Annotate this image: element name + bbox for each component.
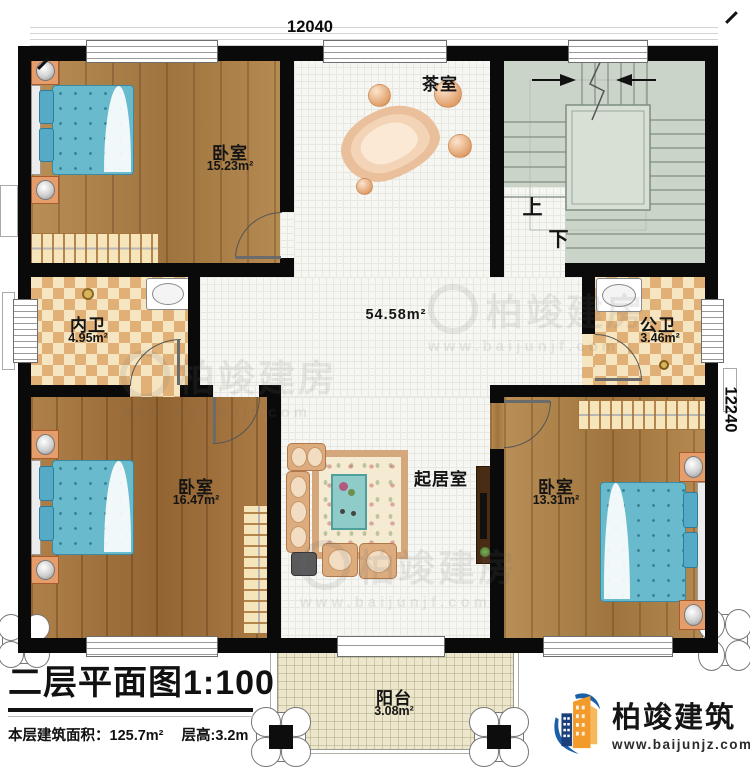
coffee-table	[331, 474, 367, 530]
wall	[490, 385, 718, 397]
wardrobe	[578, 400, 707, 430]
room-area-hall: 54.58m²	[365, 307, 426, 323]
wall	[280, 46, 294, 212]
floor-height-text: 层高:3.2m	[182, 728, 249, 744]
window	[701, 299, 724, 363]
balcony-post	[474, 712, 524, 762]
room-area-bedroom-bottom-left: 16.47m²	[173, 493, 220, 507]
balcony-door-threshold	[337, 636, 445, 657]
door-opening	[130, 385, 180, 397]
title-underline	[8, 708, 253, 712]
window	[13, 299, 38, 363]
title-block: 二层平面图1:100 本层建筑面积：125.7m²层高:3.2m	[8, 655, 275, 745]
door-opening	[582, 334, 595, 385]
floor-area-text: 本层建筑面积：125.7m²	[8, 728, 164, 744]
floor-plan-canvas: 12040 12240 卧室 15.23m² 茶室 上 下 内卫 4.95m² …	[0, 0, 750, 773]
room-label-living-room: 起居室	[414, 465, 468, 490]
pillow	[683, 492, 698, 528]
sofa-chair	[287, 443, 326, 471]
ac-unit-platform	[0, 185, 18, 237]
window	[323, 40, 447, 63]
room-area-bedroom-top-left: 15.23m²	[207, 159, 254, 173]
wall	[565, 263, 718, 277]
dimension-right: 12240	[721, 382, 740, 438]
floor-drain	[659, 360, 669, 370]
door-opening	[490, 403, 504, 449]
window	[86, 40, 218, 63]
wall	[188, 277, 200, 397]
pillow	[683, 532, 698, 568]
room-area-bedroom-bottom-right: 13.31m²	[533, 493, 580, 507]
sink	[146, 278, 190, 310]
wall	[490, 46, 504, 277]
company-logo-icon	[546, 688, 604, 758]
door-leaf	[177, 339, 180, 385]
dimension-tick	[725, 11, 738, 24]
sink	[596, 278, 642, 312]
dimension-top: 12040	[287, 18, 333, 37]
room-label-tea-room: 茶室	[422, 70, 458, 95]
company-logo: 柏竣建筑 www.baijunjz.com	[546, 688, 750, 758]
sofa-chair	[322, 543, 358, 577]
stairs-up-label: 上	[523, 191, 544, 220]
nightstand	[679, 452, 707, 482]
wall	[582, 277, 595, 334]
window	[543, 636, 673, 657]
wall	[18, 263, 294, 277]
wall	[490, 449, 504, 638]
wall	[180, 385, 213, 397]
pillow	[39, 128, 54, 162]
page-title: 二层平面图1:100	[8, 655, 275, 704]
stairs-down-label: 下	[549, 223, 570, 252]
nightstand	[31, 430, 59, 459]
company-name: 柏竣建筑	[612, 694, 750, 736]
room-area-inner-bathroom: 4.95m²	[68, 331, 108, 345]
door-leaf	[504, 400, 550, 403]
side-table	[291, 552, 317, 576]
pillow	[39, 506, 54, 541]
wall	[259, 385, 281, 397]
door-leaf	[595, 378, 641, 381]
title-underline-thin	[8, 716, 253, 717]
pillow	[39, 90, 54, 124]
door-opening	[213, 385, 259, 397]
nightstand	[31, 176, 59, 204]
nightstand	[679, 600, 707, 630]
door-leaf	[213, 397, 216, 443]
sofa	[286, 471, 310, 553]
wall	[18, 385, 130, 397]
room-area-balcony: 3.08m²	[374, 704, 414, 718]
pillow	[39, 466, 54, 501]
tea-room-stone-art	[330, 80, 480, 195]
door-leaf	[235, 256, 281, 259]
wall	[267, 397, 281, 638]
room-area-public-bathroom: 3.46m²	[640, 331, 680, 345]
staircase	[504, 60, 705, 263]
sofa-chair	[359, 543, 397, 579]
company-website: www.baijunjz.com	[612, 737, 750, 752]
door-opening	[280, 212, 294, 258]
room-hall	[200, 277, 582, 397]
floor-stats: 本层建筑面积：125.7m²层高:3.2m	[8, 724, 275, 745]
window	[86, 636, 218, 657]
window	[568, 40, 648, 63]
wardrobe	[31, 233, 159, 264]
ceiling-lamp	[82, 288, 94, 300]
nightstand	[31, 556, 59, 584]
